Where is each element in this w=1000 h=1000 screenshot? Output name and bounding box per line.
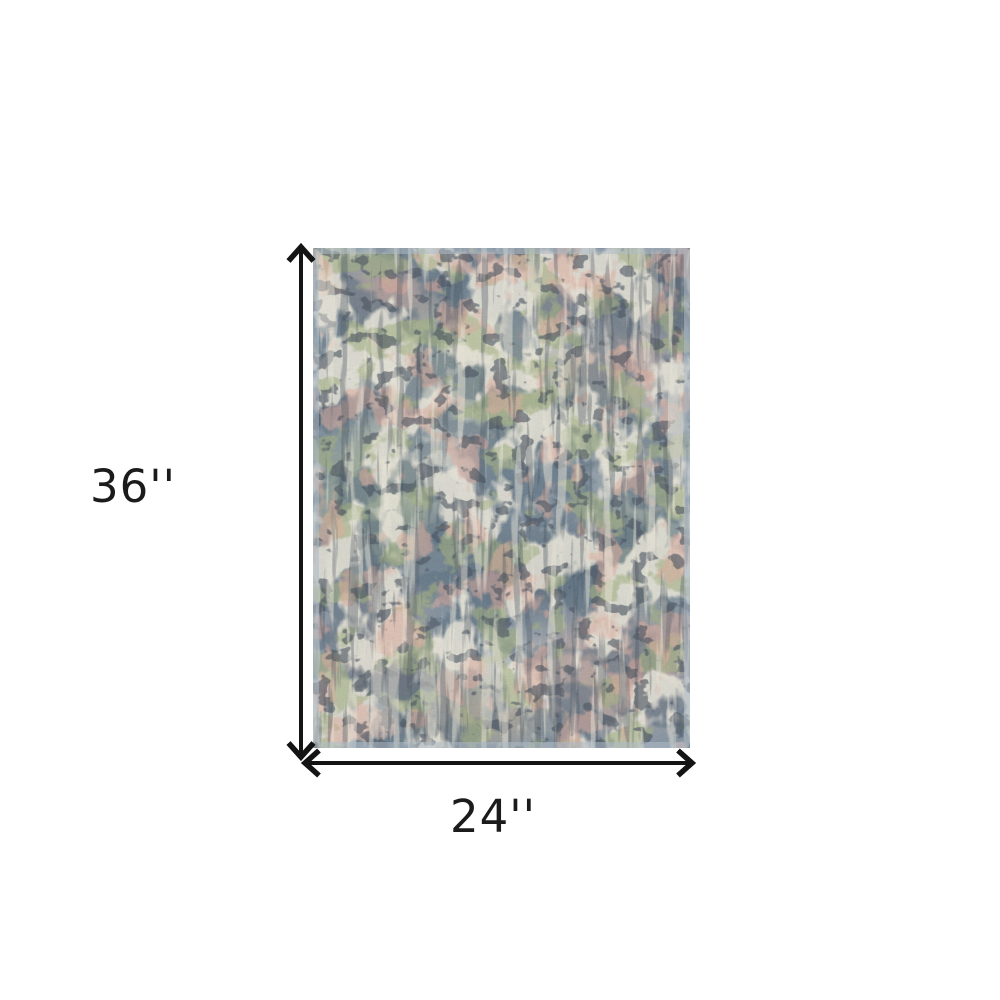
width-dimension-arrow <box>305 751 692 776</box>
rug-grain-overlay <box>313 248 690 748</box>
height-dimension-label: 36'' <box>78 464 188 509</box>
product-dimension-diagram: 36'' 24'' <box>0 0 1000 1000</box>
rug-texture <box>313 248 690 748</box>
width-dimension-label: 24'' <box>438 794 548 839</box>
rug-image <box>313 248 690 748</box>
height-dimension-arrow <box>289 247 314 757</box>
